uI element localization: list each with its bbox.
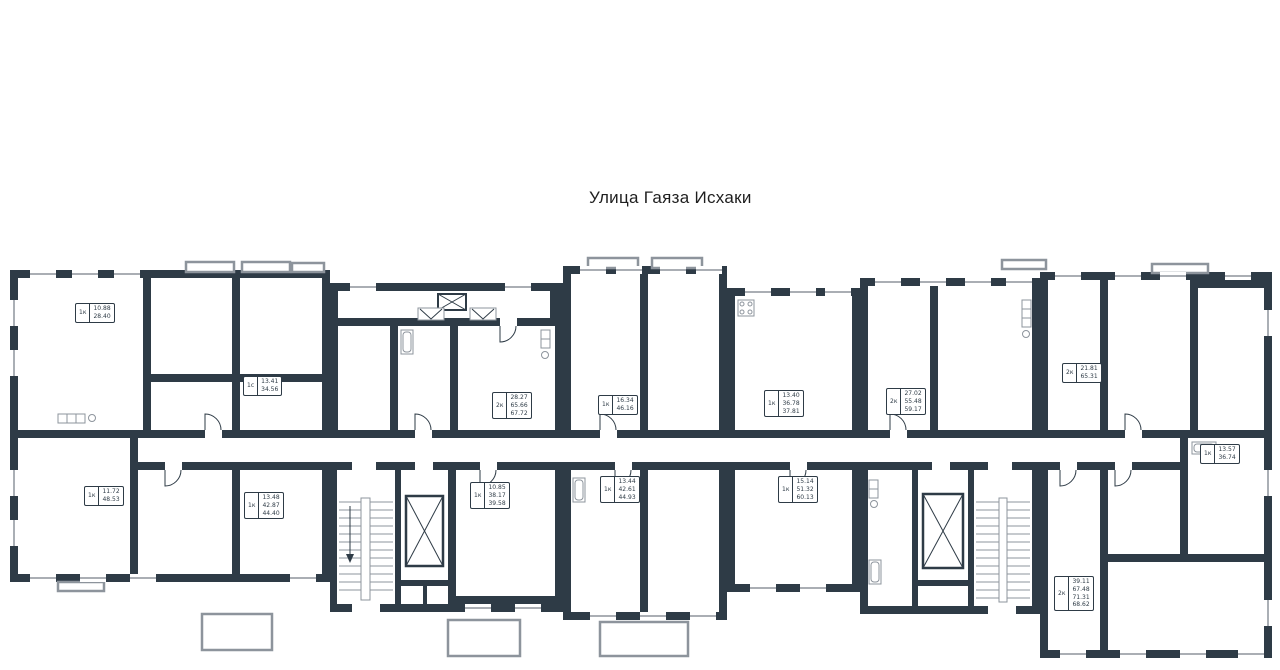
apartment-label: 1к10.8538.1739.58 xyxy=(470,482,510,509)
apartment-type: 2к xyxy=(887,389,901,414)
apartment-areas: 21.8165.31 xyxy=(1077,364,1100,382)
apartment-type: 1к xyxy=(779,477,793,502)
apartment-label: 1к13.4036.7837.81 xyxy=(764,390,804,417)
apartment-type: 1к xyxy=(471,483,485,508)
apartment-type: 1к xyxy=(599,396,613,414)
apartment-areas: 10.8538.1739.58 xyxy=(485,483,508,508)
apartment-label: 2к39.1167.4871.3168.62 xyxy=(1054,576,1094,611)
apartment-type: 1с xyxy=(244,377,258,395)
apartment-areas: 13.4442.6144.93 xyxy=(615,477,638,502)
apartment-type: 1к xyxy=(601,477,615,502)
apartment-areas: 13.4036.7837.81 xyxy=(779,391,802,416)
apartment-label: 1к16.3446.16 xyxy=(598,395,638,415)
apartment-type: 2к xyxy=(1063,364,1077,382)
apartment-label: 1с13.4134.56 xyxy=(243,376,282,396)
floor-plan-page: Улица Гаяза Исхаки xyxy=(0,0,1280,670)
apartment-areas: 13.5736.74 xyxy=(1215,445,1238,463)
apartment-label: 2к27.0255.4859.17 xyxy=(886,388,926,415)
apartment-label: 1к13.4442.6144.93 xyxy=(600,476,640,503)
apartment-areas: 13.4842.8744.40 xyxy=(259,493,282,518)
apartment-areas: 39.1167.4871.3168.62 xyxy=(1069,577,1092,610)
apartment-labels: 1к10.8828.401с13.4134.562к28.2765.6667.7… xyxy=(0,0,1280,670)
apartment-areas: 11.7248.53 xyxy=(99,487,122,505)
apartment-areas: 13.4134.56 xyxy=(258,377,281,395)
apartment-areas: 28.2765.6667.72 xyxy=(507,393,530,418)
apartment-type: 2к xyxy=(493,393,507,418)
apartment-label: 1к10.8828.40 xyxy=(75,303,115,323)
apartment-label: 2к28.2765.6667.72 xyxy=(492,392,532,419)
apartment-label: 1к11.7248.53 xyxy=(84,486,124,506)
apartment-areas: 10.8828.40 xyxy=(90,304,113,322)
apartment-areas: 16.3446.16 xyxy=(613,396,636,414)
apartment-areas: 15.1451.3260.13 xyxy=(793,477,816,502)
apartment-label: 2к21.8165.31 xyxy=(1062,363,1102,383)
apartment-type: 1к xyxy=(76,304,90,322)
apartment-label: 1к13.4842.8744.40 xyxy=(244,492,284,519)
apartment-areas: 27.0255.4859.17 xyxy=(901,389,924,414)
apartment-label: 1к13.5736.74 xyxy=(1200,444,1240,464)
apartment-type: 2к xyxy=(1055,577,1069,610)
apartment-type: 1к xyxy=(85,487,99,505)
apartment-type: 1к xyxy=(1201,445,1215,463)
apartment-type: 1к xyxy=(765,391,779,416)
apartment-type: 1к xyxy=(245,493,259,518)
apartment-label: 1к15.1451.3260.13 xyxy=(778,476,818,503)
